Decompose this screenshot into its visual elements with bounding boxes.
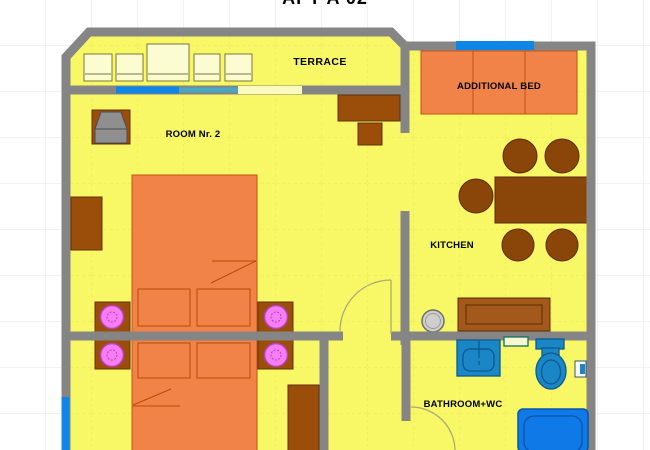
nightstand-with-lamp <box>258 302 293 332</box>
dining-chair <box>459 179 493 213</box>
room2-label: ROOM Nr. 2 <box>166 129 221 140</box>
nightstand-with-lamp <box>258 340 293 369</box>
terrace-chair <box>84 54 112 81</box>
terrace-chair <box>194 54 220 81</box>
terrace-label: TERRACE <box>293 56 347 68</box>
plan-title: APT A 02 <box>0 0 650 9</box>
terrace-window <box>116 87 179 94</box>
dining-chair <box>503 139 537 173</box>
nightstand-with-lamp <box>95 302 130 332</box>
double-bed-upper <box>132 175 257 333</box>
terrace-door-opening <box>238 86 302 94</box>
bedroom-window <box>62 397 70 450</box>
bathtub <box>518 409 588 450</box>
bathroom-sink <box>457 340 500 376</box>
kitchen-label: KITCHEN <box>430 240 474 251</box>
stool <box>358 123 382 145</box>
kitchen-window <box>456 41 534 50</box>
wardrobe <box>288 385 319 450</box>
dining-chair <box>545 139 579 173</box>
kitchen-round-sink <box>422 310 444 332</box>
terrace-chair <box>225 54 252 81</box>
floor-plan-page: APT A 02 <box>0 0 650 450</box>
bed-lamp <box>265 306 288 329</box>
terrace-chair <box>116 54 143 81</box>
dining-chair <box>546 229 578 261</box>
desk <box>338 95 400 121</box>
nightstand-with-lamp <box>95 340 130 369</box>
wardrobe <box>71 197 102 250</box>
paper-holder <box>575 361 586 377</box>
toilet <box>536 339 566 389</box>
bed-lamp <box>101 344 124 367</box>
dining-table <box>495 177 588 223</box>
dining-chair <box>502 229 534 261</box>
kitchen-counter <box>458 298 550 331</box>
terrace-table <box>147 44 189 81</box>
double-bed-lower <box>132 340 257 450</box>
shelf <box>504 337 528 346</box>
bed-lamp <box>101 306 124 329</box>
terrace-window <box>179 88 238 93</box>
tv-set <box>92 110 130 144</box>
bed-lamp <box>265 344 288 367</box>
additional-bed-label: ADDITIONAL BED <box>457 81 541 92</box>
bathroom-label: BATHROOM+WC <box>424 399 503 410</box>
floor-plan: TERRACE ROOM Nr. 2 ADDITIONAL BED KITCHE… <box>0 0 650 450</box>
